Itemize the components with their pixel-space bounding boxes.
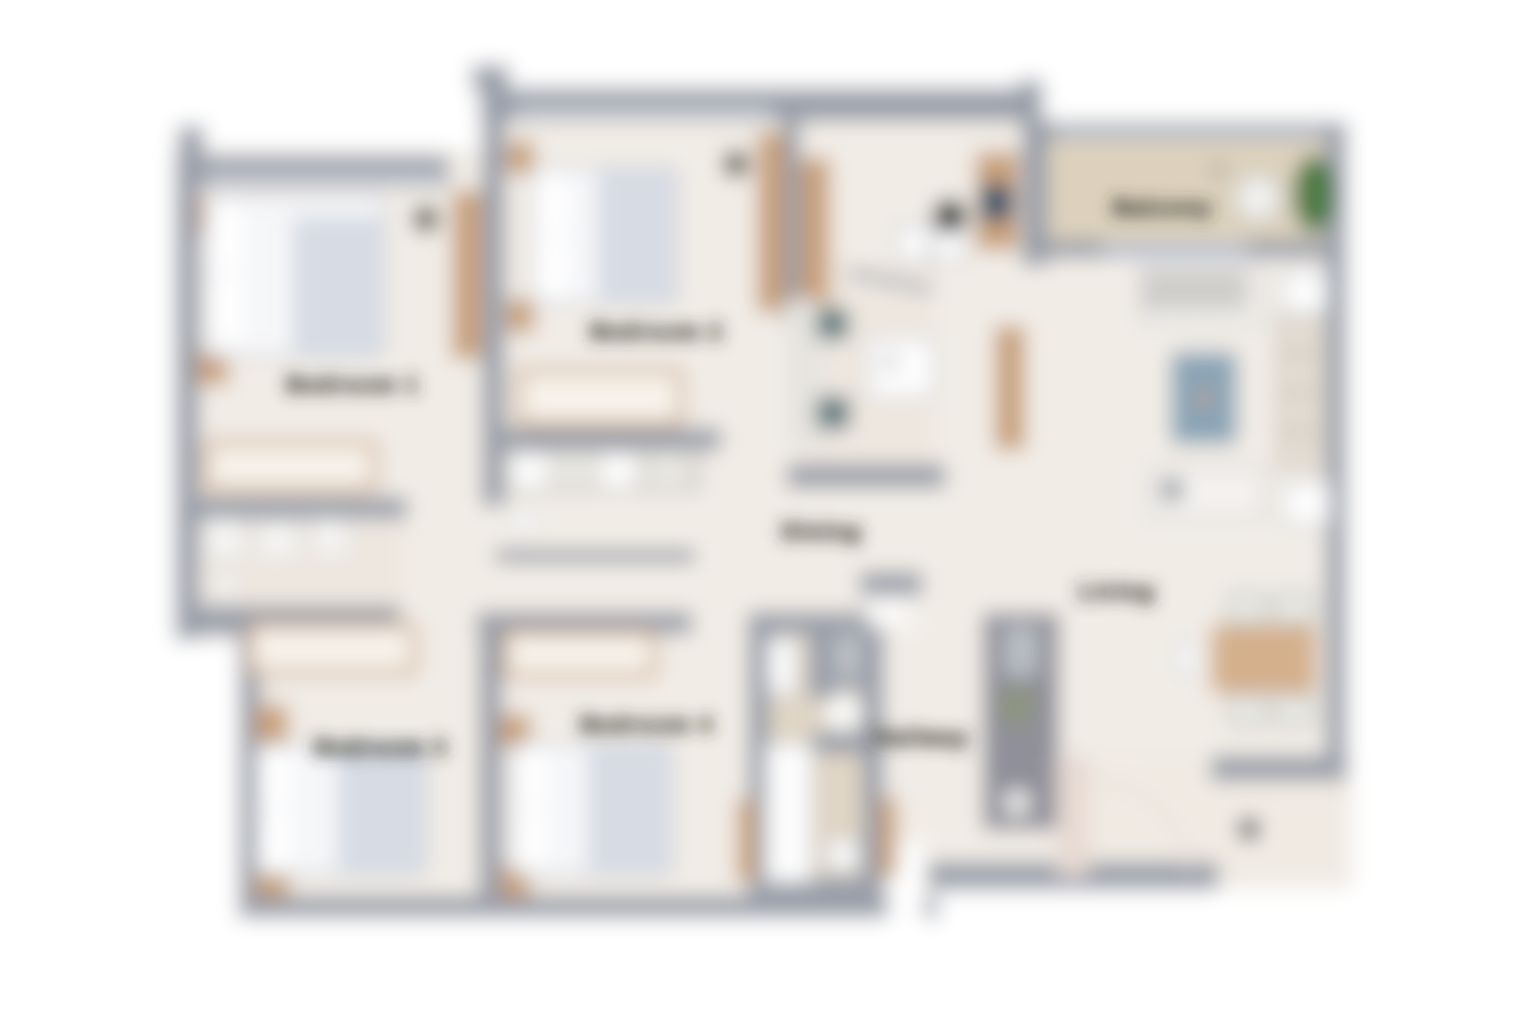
svg-text:Hallway: Hallway [874,725,970,750]
svg-text:Dining: Dining [782,519,862,544]
svg-text:Bedroom 3: Bedroom 3 [315,735,448,760]
svg-text:Bedroom 2: Bedroom 2 [591,319,724,344]
svg-text:Bedroom 1: Bedroom 1 [287,372,420,397]
svg-text:Bedroom 4: Bedroom 4 [581,712,714,737]
svg-text:Balcony: Balcony [1113,195,1213,220]
svg-text:Living: Living [1079,579,1156,604]
